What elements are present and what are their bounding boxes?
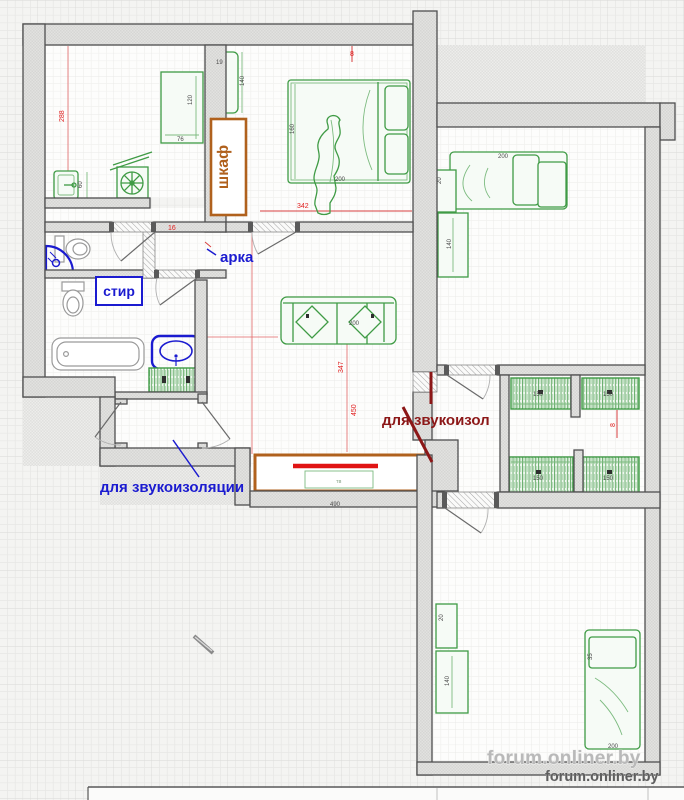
- dimension-label: 35: [588, 653, 594, 660]
- dimension-label: 150: [533, 476, 544, 482]
- cabinet: [436, 604, 457, 648]
- pillow: [513, 155, 539, 205]
- dimension-label: 16: [168, 225, 176, 232]
- watermark-large: forum.onliner.by: [487, 748, 641, 769]
- dimension-label: 200: [349, 321, 360, 327]
- dimension-label: 8: [610, 423, 617, 427]
- floor-plan-canvas: тв: [0, 0, 684, 800]
- kitchen-table: [161, 72, 203, 143]
- dimension-label: 342: [297, 203, 309, 210]
- dimension-label: 120: [188, 94, 194, 105]
- arch-label: арка: [220, 249, 254, 266]
- dimension-label: 140: [240, 75, 246, 86]
- wardrobe-label: шкаф: [215, 145, 232, 189]
- dimension-label: 8: [350, 51, 354, 58]
- dimension-label: 150: [603, 392, 614, 398]
- dimension-label: 140: [445, 675, 451, 686]
- washer-label: стир: [103, 283, 135, 299]
- console-text: тв: [336, 479, 342, 485]
- pillow: [589, 637, 636, 668]
- pillow: [385, 134, 408, 174]
- bedside-cabinet: [436, 170, 456, 212]
- hall-wardrobe: шкаф: [211, 119, 246, 215]
- watermark-small: forum.onliner.by: [545, 769, 659, 785]
- bathtub: [52, 338, 144, 370]
- dimension-label: 200: [498, 154, 509, 160]
- floor-plan-page: тв: [0, 0, 684, 800]
- dimension-label: 20: [437, 177, 443, 184]
- dimension-label: 76: [177, 137, 184, 143]
- dimension-label: 347: [338, 361, 345, 373]
- double-bed: [288, 80, 410, 183]
- dimension-label: 150: [533, 392, 544, 398]
- dimension-label: 160: [290, 123, 296, 134]
- pillow: [385, 86, 408, 130]
- soundproof-blue-label: для звукоизоляции: [100, 479, 244, 496]
- dimension-label: 200: [335, 177, 346, 183]
- single-bed-b1: [450, 152, 567, 209]
- dimension-label: 450: [351, 404, 358, 416]
- dimension-label: 20: [439, 614, 445, 621]
- dimension-label: 19: [216, 60, 223, 66]
- bottom-strip: [88, 787, 684, 800]
- dimension-label: 140: [447, 238, 453, 249]
- passage-living-to-closet: [413, 372, 437, 392]
- dimension-label: 288: [59, 110, 66, 122]
- dimension-label: 60: [78, 181, 84, 188]
- dimension-label: 150: [603, 476, 614, 482]
- soundproof-red-label: для звукоизол: [382, 412, 490, 429]
- sofa: [281, 297, 396, 344]
- dimension-label: 490: [330, 502, 341, 508]
- single-bed-b2: [585, 630, 640, 749]
- radiator: [149, 368, 202, 392]
